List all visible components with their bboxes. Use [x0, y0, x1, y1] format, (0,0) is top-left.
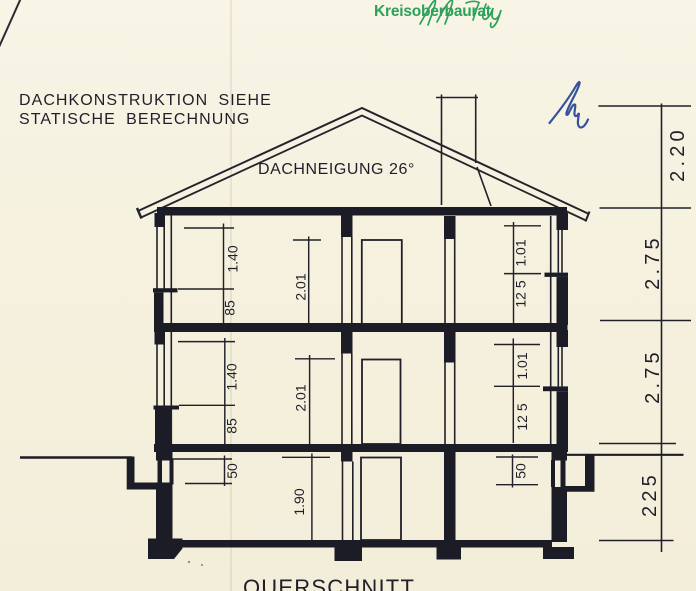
svg-text:1.01: 1.01: [514, 352, 530, 379]
svg-text:DACHNEIGUNG 26°: DACHNEIGUNG 26°: [258, 161, 415, 178]
svg-text:STATISCHE BERECHNUNG: STATISCHE BERECHNUNG: [19, 111, 250, 128]
svg-text:1.40: 1.40: [225, 245, 241, 272]
svg-text:12 5: 12 5: [513, 280, 529, 307]
svg-text:2.75: 2.75: [642, 234, 664, 290]
svg-text:12 5: 12 5: [514, 403, 530, 430]
svg-text:85: 85: [224, 418, 240, 434]
svg-text:50: 50: [513, 463, 529, 479]
svg-text:225: 225: [639, 471, 661, 517]
svg-text:2.75: 2.75: [642, 348, 664, 404]
svg-text:DACHKONSTRUKTION SIEHE: DACHKONSTRUKTION SIEHE: [19, 92, 272, 109]
svg-text:2.01: 2.01: [293, 384, 309, 411]
svg-text:2.01: 2.01: [293, 273, 309, 300]
svg-text:85: 85: [222, 300, 238, 316]
svg-text:QUERSCHNITT: QUERSCHNITT: [243, 575, 415, 591]
svg-text:1.90: 1.90: [291, 488, 307, 515]
svg-text:50: 50: [224, 463, 240, 479]
svg-text:1.01: 1.01: [513, 239, 529, 266]
svg-text:1.40: 1.40: [224, 363, 240, 390]
svg-text:2.20: 2.20: [667, 126, 689, 182]
